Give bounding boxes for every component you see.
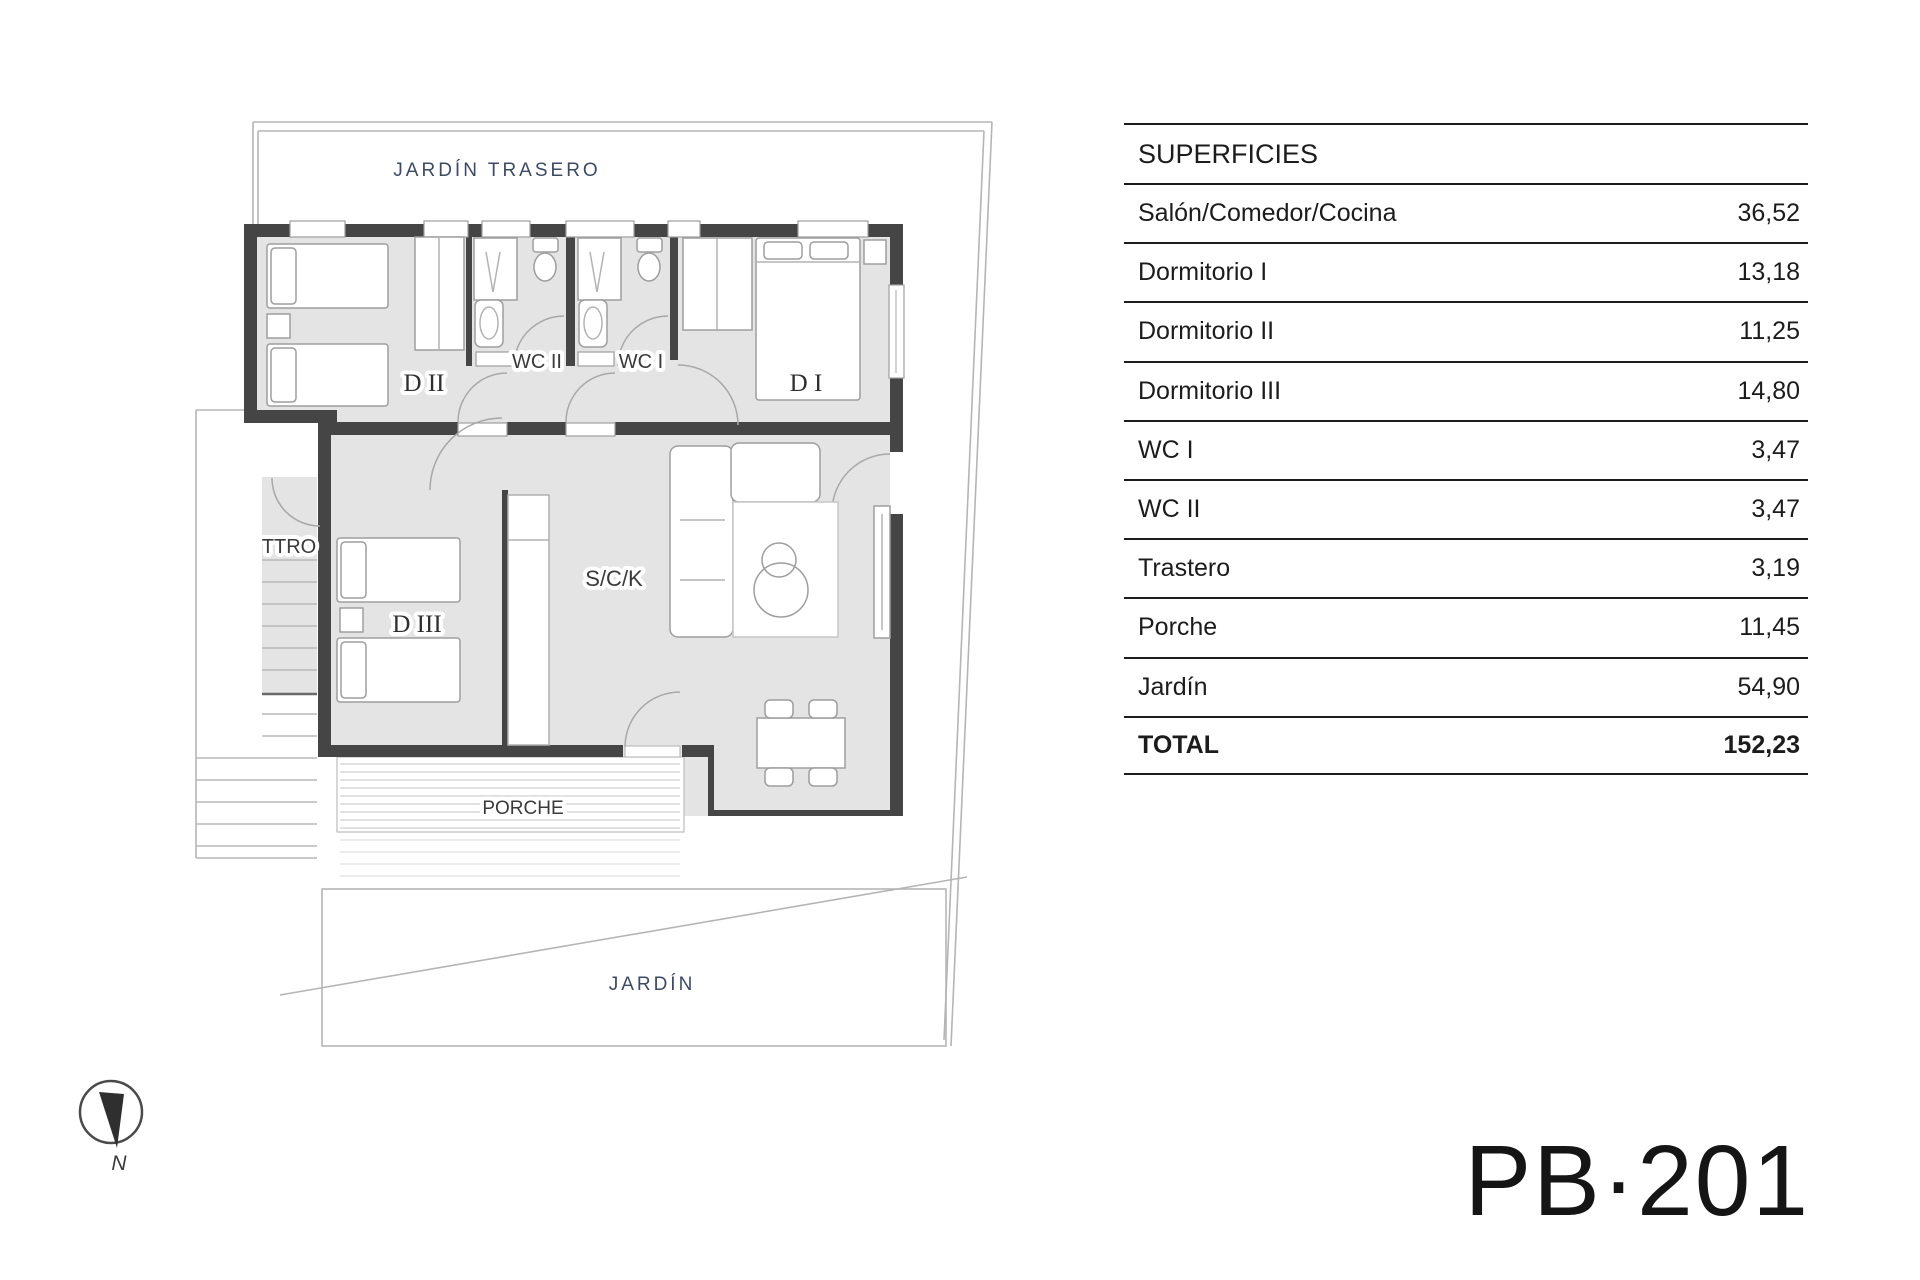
total-value: 152,23 <box>1724 731 1800 760</box>
row-value: 11,25 <box>1739 317 1800 346</box>
bedroom2-label: D II <box>404 370 445 397</box>
row-label: WC I <box>1138 436 1194 465</box>
table-row: Salón/Comedor/Cocina 36,52 <box>1124 183 1808 242</box>
row-value: 13,18 <box>1737 258 1800 287</box>
row-label: Dormitorio I <box>1138 258 1267 287</box>
surfaces-table: SUPERFICIES Salón/Comedor/Cocina 36,52 D… <box>1124 123 1808 775</box>
row-label: Dormitorio III <box>1138 377 1281 406</box>
bedroom1-label: D I <box>790 370 823 397</box>
row-label: Porche <box>1138 613 1217 642</box>
floor-plan-sheet: JARDÍN TRASERO D II WC II WC I D I TTRO … <box>0 0 1920 1280</box>
storage-label: TTRO <box>262 536 316 558</box>
row-label: Dormitorio II <box>1138 317 1274 346</box>
row-label: Jardín <box>1138 673 1207 702</box>
row-value: 11,45 <box>1739 613 1800 642</box>
row-value: 14,80 <box>1737 377 1800 406</box>
plan-code: PB·201 <box>1464 1124 1810 1239</box>
table-total-row: TOTAL 152,23 <box>1124 716 1808 775</box>
garden-label: JARDÍN <box>609 974 696 995</box>
surfaces-header-label: SUPERFICIES <box>1138 139 1318 170</box>
wc2-label: WC II <box>512 351 562 373</box>
row-value: 3,19 <box>1751 554 1800 583</box>
table-row: Dormitorio II 11,25 <box>1124 301 1808 360</box>
row-label: WC II <box>1138 495 1201 524</box>
table-row: Trastero 3,19 <box>1124 538 1808 597</box>
table-row: WC II 3,47 <box>1124 479 1808 538</box>
table-row: Jardín 54,90 <box>1124 657 1808 716</box>
porch-label: PORCHE <box>482 798 563 819</box>
storage-room-fill <box>262 477 317 694</box>
table-row: Dormitorio III 14,80 <box>1124 361 1808 420</box>
table-row: Porche 11,45 <box>1124 597 1808 656</box>
row-value: 3,47 <box>1751 495 1800 524</box>
north-arrow-icon: N <box>80 1081 142 1175</box>
compass-north-label: N <box>111 1152 127 1175</box>
total-label: TOTAL <box>1138 731 1219 760</box>
row-value: 36,52 <box>1737 199 1800 228</box>
row-label: Trastero <box>1138 554 1230 583</box>
table-row: WC I 3,47 <box>1124 420 1808 479</box>
row-value: 54,90 <box>1737 673 1800 702</box>
row-label: Salón/Comedor/Cocina <box>1138 199 1396 228</box>
row-value: 3,47 <box>1751 436 1800 465</box>
corridor-closet <box>508 495 549 745</box>
living-label: S/C/K <box>585 566 643 591</box>
garden-back-label: JARDÍN TRASERO <box>393 160 600 181</box>
wc1-label: WC I <box>619 351 663 373</box>
surfaces-table-header: SUPERFICIES <box>1124 123 1808 183</box>
bedroom3-label: D III <box>392 611 441 638</box>
table-row: Dormitorio I 13,18 <box>1124 242 1808 301</box>
